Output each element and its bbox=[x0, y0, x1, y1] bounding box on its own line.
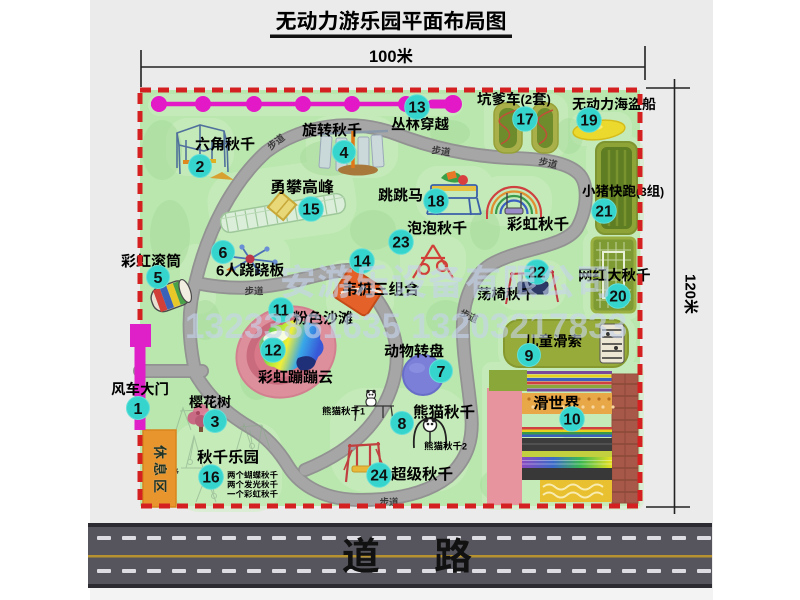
svg-text:18: 18 bbox=[427, 194, 445, 211]
svg-text:100: 100 bbox=[369, 48, 397, 66]
svg-text:8: 8 bbox=[398, 416, 407, 433]
svg-text:): ) bbox=[660, 185, 664, 199]
svg-text:23: 23 bbox=[392, 235, 410, 252]
svg-text:1: 1 bbox=[134, 401, 143, 418]
svg-text:1: 1 bbox=[360, 406, 365, 416]
svg-text:2: 2 bbox=[462, 441, 467, 451]
svg-text:3: 3 bbox=[211, 414, 220, 431]
svg-text:6: 6 bbox=[216, 262, 224, 279]
svg-text:13233861635 13203217833: 13233861635 13203217833 bbox=[185, 307, 628, 346]
svg-text:20: 20 bbox=[609, 289, 626, 306]
svg-text:15: 15 bbox=[302, 202, 320, 219]
svg-text:(2: (2 bbox=[521, 92, 533, 107]
svg-text:10: 10 bbox=[563, 412, 580, 429]
svg-text:120: 120 bbox=[682, 274, 699, 299]
svg-text:21: 21 bbox=[595, 204, 613, 221]
svg-text:13: 13 bbox=[408, 100, 426, 117]
svg-text:7: 7 bbox=[437, 364, 446, 381]
svg-text:6: 6 bbox=[219, 245, 228, 262]
svg-text:9: 9 bbox=[525, 348, 534, 365]
svg-text:16: 16 bbox=[202, 470, 220, 487]
svg-text:4: 4 bbox=[340, 145, 349, 162]
svg-text:): ) bbox=[547, 92, 551, 107]
svg-text:5: 5 bbox=[154, 270, 163, 287]
svg-text:24: 24 bbox=[370, 468, 388, 485]
svg-text:17: 17 bbox=[516, 112, 533, 129]
svg-text:19: 19 bbox=[580, 113, 598, 130]
svg-text:2: 2 bbox=[196, 159, 205, 176]
